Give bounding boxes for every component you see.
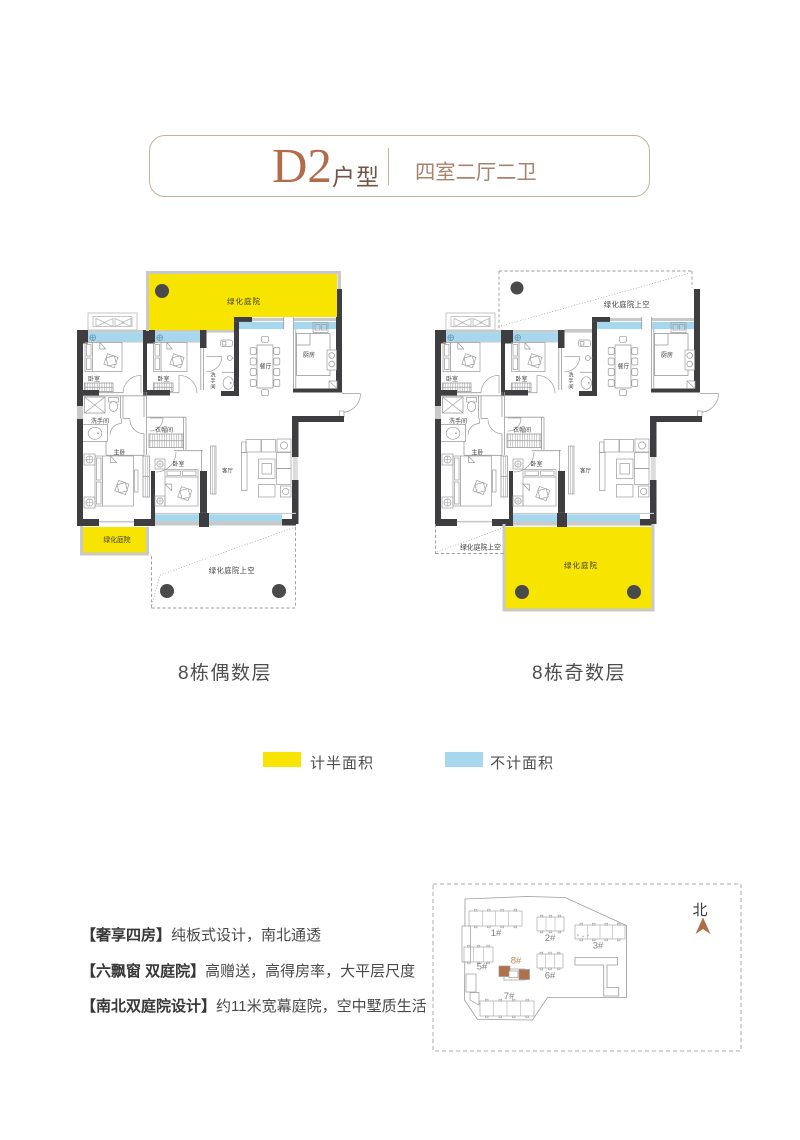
- svg-text:卧室: 卧室: [157, 375, 169, 383]
- svg-text:间: 间: [568, 383, 573, 391]
- svg-text:8#: 8#: [511, 956, 522, 967]
- svg-text:7#: 7#: [504, 991, 515, 1002]
- svg-text:绿化庭院上空: 绿化庭院上空: [460, 543, 501, 552]
- svg-text:间: 间: [210, 383, 215, 391]
- svg-text:客厅: 客厅: [222, 467, 234, 475]
- svg-text:厨房: 厨房: [303, 351, 315, 359]
- svg-text:绿化庭院: 绿化庭院: [103, 535, 130, 544]
- svg-text:绿化庭院上空: 绿化庭院上空: [604, 300, 650, 309]
- svg-text:卧室: 卧室: [88, 375, 100, 383]
- svg-text:1#: 1#: [491, 928, 502, 939]
- svg-text:餐厅: 餐厅: [617, 363, 629, 371]
- svg-text:衣帽间: 衣帽间: [513, 426, 531, 434]
- svg-text:主卧: 主卧: [471, 449, 483, 457]
- svg-text:绿化庭院上空: 绿化庭院上空: [209, 566, 255, 575]
- svg-text:卧室: 卧室: [446, 375, 458, 383]
- svg-text:卧室: 卧室: [530, 460, 542, 468]
- svg-text:手: 手: [210, 377, 215, 385]
- svg-text:3#: 3#: [593, 941, 604, 952]
- svg-text:6#: 6#: [545, 971, 556, 982]
- svg-text:洗: 洗: [210, 371, 216, 379]
- svg-text:卧室: 卧室: [172, 460, 184, 468]
- svg-text:餐厅: 餐厅: [259, 363, 271, 371]
- svg-text:北: 北: [692, 902, 707, 919]
- svg-text:2#: 2#: [545, 933, 556, 944]
- svg-text:绿化庭院: 绿化庭院: [227, 296, 261, 306]
- svg-text:洗手间: 洗手间: [91, 417, 109, 425]
- svg-text:洗手间: 洗手间: [449, 417, 467, 425]
- svg-text:5#: 5#: [477, 962, 488, 973]
- svg-text:卧室: 卧室: [515, 375, 527, 383]
- svg-text:主卧: 主卧: [113, 449, 125, 457]
- svg-text:厨房: 厨房: [661, 351, 673, 359]
- svg-text:手: 手: [568, 377, 573, 385]
- svg-text:绿化庭院: 绿化庭院: [564, 560, 598, 570]
- svg-text:衣帽间: 衣帽间: [155, 426, 173, 434]
- svg-text:客厅: 客厅: [580, 467, 592, 475]
- svg-text:洗: 洗: [568, 371, 574, 379]
